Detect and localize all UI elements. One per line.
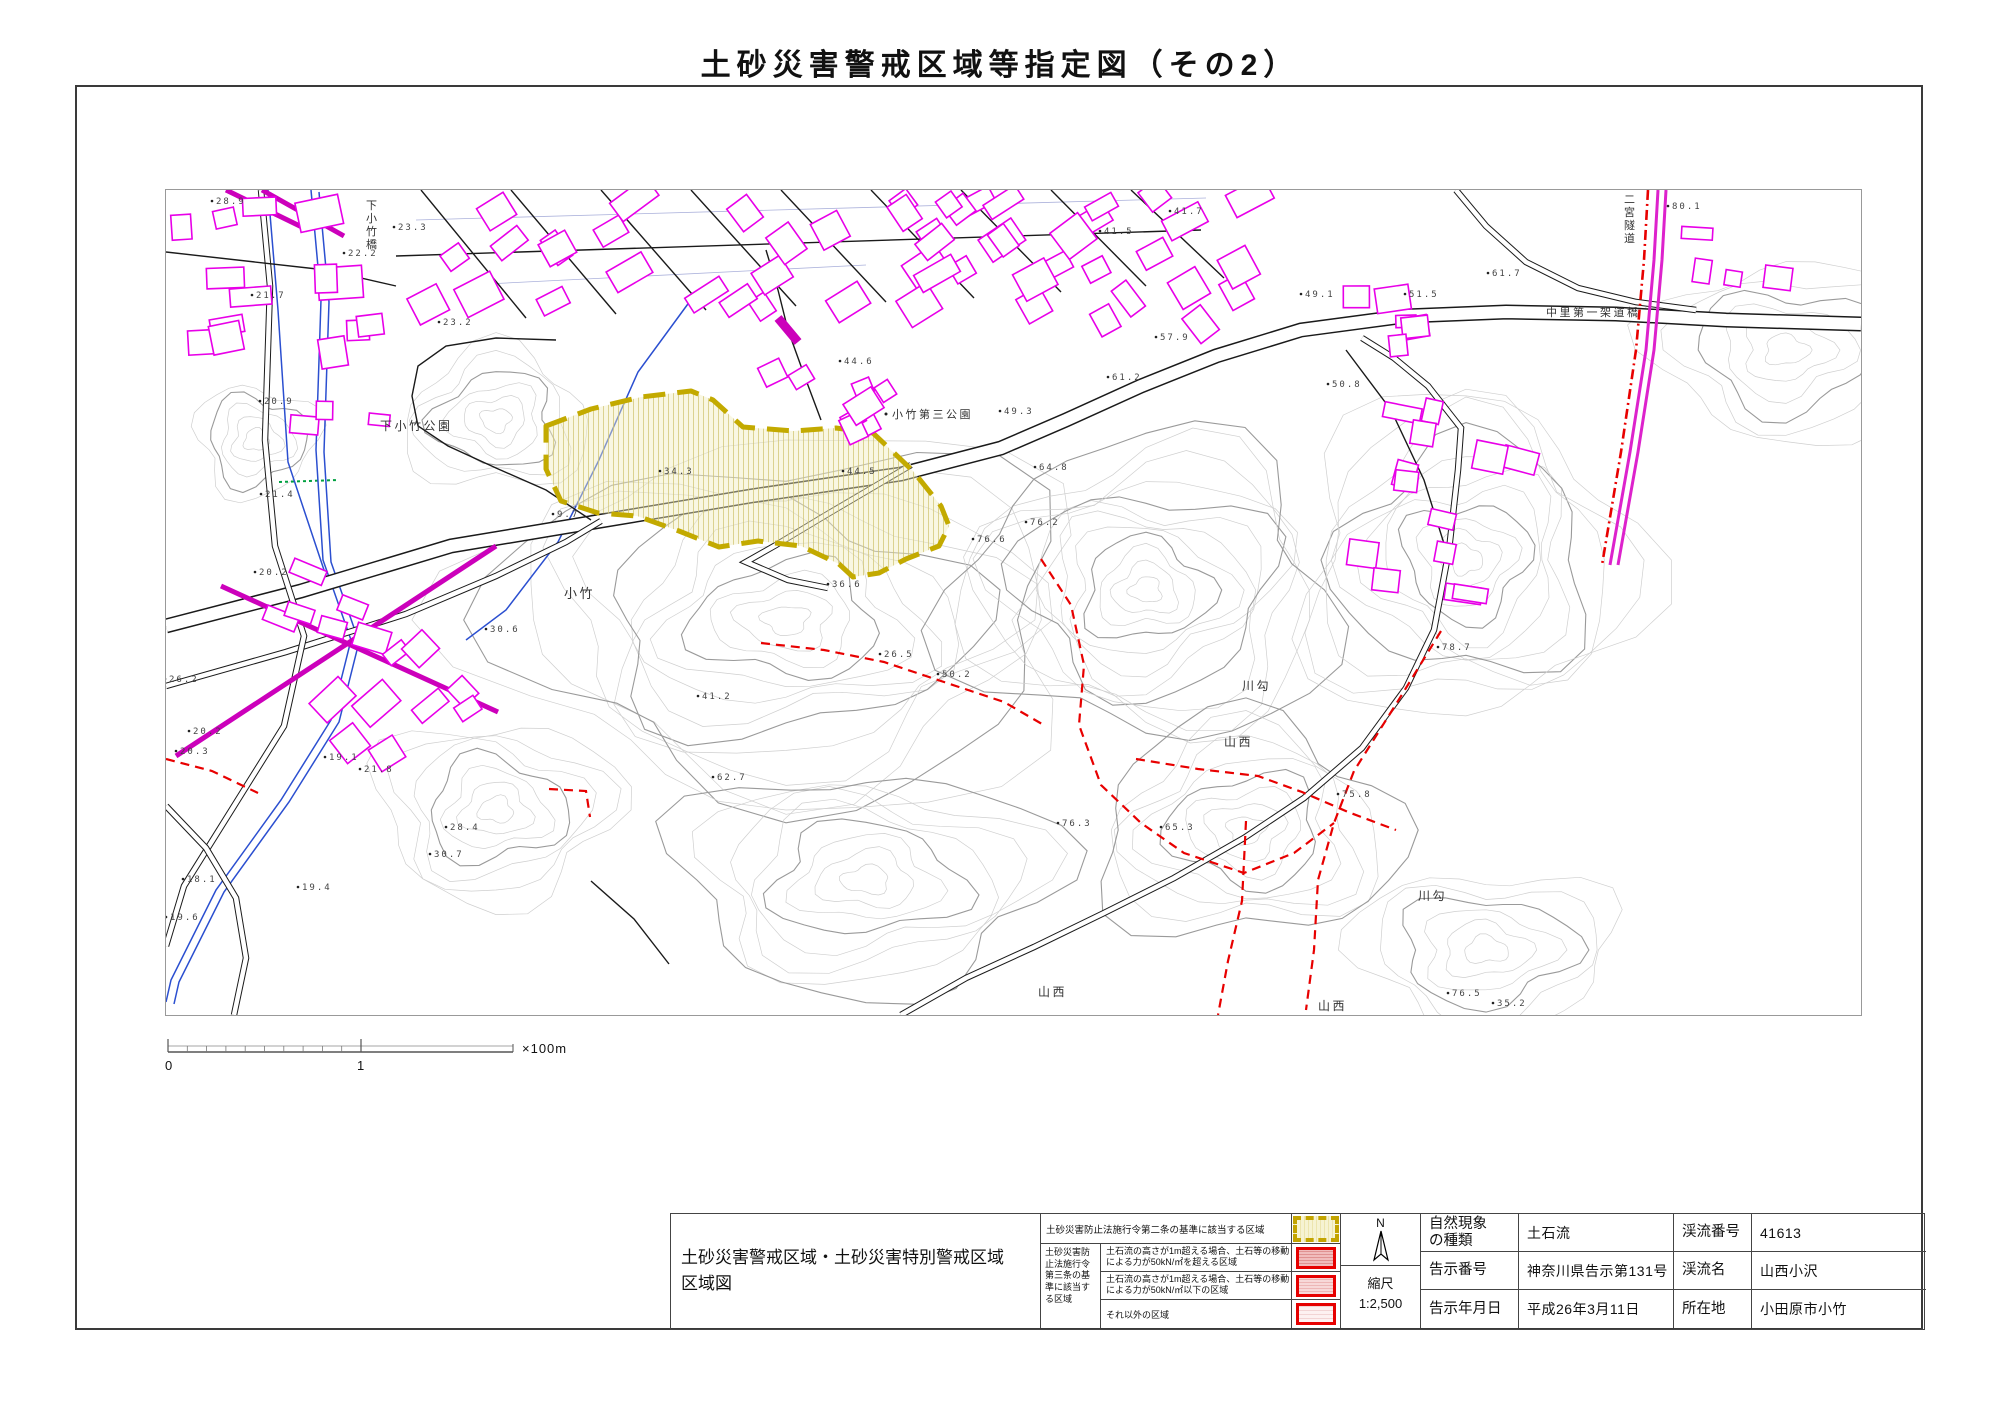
notice-number-value: 神奈川県告示第131号 [1519, 1252, 1674, 1290]
document-page: { "title": "土砂災害警戒区域等指定図（その2）", "scale_b… [0, 0, 2000, 1414]
red-zone-symbol-dense [1296, 1247, 1336, 1269]
map-canvas: 28.922.223.321.720.923.221.420.226.230.6… [166, 190, 1861, 1015]
svg-text:50.8: 50.8 [1332, 380, 1362, 390]
svg-text:57.9: 57.9 [1160, 333, 1190, 343]
svg-text:1: 1 [357, 1058, 364, 1073]
svg-text:20.3: 20.3 [180, 747, 210, 757]
legend-article3-group-label: 土砂災害防止法施行令第三条の基準に該当する区域 [1041, 1244, 1101, 1328]
svg-text:61.2: 61.2 [1112, 373, 1142, 383]
hazard-map: 28.922.223.321.720.923.221.420.226.230.6… [165, 189, 1862, 1016]
map-sheet-title-line2: 区域図 [681, 1271, 1040, 1297]
svg-text:山西: 山西 [1318, 999, 1347, 1013]
red-zone-symbol-medium [1296, 1275, 1336, 1297]
svg-text:28.9: 28.9 [216, 197, 246, 207]
svg-text:山西: 山西 [1038, 985, 1067, 999]
location-label: 所在地 [1674, 1290, 1752, 1328]
notice-number-label: 告示番号 [1421, 1252, 1519, 1290]
hazard-zone-layer [546, 391, 949, 577]
svg-text:49.3: 49.3 [1004, 407, 1034, 417]
svg-text:21.4: 21.4 [265, 490, 295, 500]
stream-number-value: 41613 [1752, 1214, 1926, 1252]
svg-text:20.9: 20.9 [264, 397, 294, 407]
map-scale-cell: 縮尺 1:2,500 [1341, 1266, 1421, 1328]
svg-text:35.2: 35.2 [1497, 999, 1527, 1009]
yellow-dashed-zone-symbol [1293, 1216, 1339, 1242]
notice-date-label: 告示年月日 [1421, 1290, 1519, 1328]
north-arrow-icon [1370, 1230, 1392, 1262]
scale-label: 縮尺 [1341, 1274, 1420, 1294]
legend-article3-row3-symbol-cell [1292, 1300, 1341, 1328]
svg-text:18.1: 18.1 [187, 875, 217, 885]
page-title: 土砂災害警戒区域等指定図（その2） [0, 40, 2000, 84]
legend-article2-symbol-cell [1292, 1214, 1341, 1244]
debris-flow-warning-zone [546, 391, 949, 577]
svg-text:41.7: 41.7 [1174, 207, 1204, 217]
svg-text:20.2: 20.2 [193, 727, 223, 737]
svg-text:61.7: 61.7 [1492, 269, 1522, 279]
legend-article3-row2-symbol-cell [1292, 1272, 1341, 1300]
stream-name-label: 渓流名 [1674, 1252, 1752, 1290]
svg-text:76.6: 76.6 [977, 535, 1007, 545]
stream-name-value: 山西小沢 [1752, 1252, 1926, 1290]
legend-article3-row3-label: それ以外の区域 [1101, 1300, 1292, 1328]
svg-text:下小竹橋: 下小竹橋 [366, 200, 378, 251]
svg-text:76.3: 76.3 [1062, 819, 1092, 829]
compass-cell: N [1341, 1214, 1421, 1266]
phenomenon-type-value: 土石流 [1519, 1214, 1674, 1252]
svg-text:44.5: 44.5 [847, 467, 877, 477]
svg-text:34.3: 34.3 [664, 467, 694, 477]
svg-text:19.6: 19.6 [170, 913, 200, 923]
north-label: N [1341, 1216, 1420, 1230]
svg-text:21.7: 21.7 [256, 291, 286, 301]
svg-text:21.8: 21.8 [364, 765, 394, 775]
svg-text:65.3: 65.3 [1165, 823, 1195, 833]
green-dotted-layer [279, 480, 338, 482]
svg-text:山西: 山西 [1224, 735, 1253, 749]
svg-text:23.3: 23.3 [398, 223, 428, 233]
legend-article3-row1-label: 土石流の高さが1m超える場合、土石等の移動による力が50kN/㎡を超える区域 [1101, 1244, 1292, 1272]
svg-text:75.8: 75.8 [1342, 790, 1372, 800]
legend-article3-row2-label: 土石流の高さが1m超える場合、土石等の移動による力が50kN/㎡以下の区域 [1101, 1272, 1292, 1300]
svg-text:49.1: 49.1 [1305, 290, 1335, 300]
svg-text:76.2: 76.2 [1030, 518, 1060, 528]
svg-text:9.7: 9.7 [557, 510, 579, 520]
svg-text:76.5: 76.5 [1452, 989, 1482, 999]
svg-text:小竹第三公園: 小竹第三公園 [892, 407, 973, 421]
svg-text:川勾: 川勾 [1418, 889, 1447, 903]
svg-text:44.6: 44.6 [844, 357, 874, 367]
svg-text:41.5: 41.5 [1104, 227, 1134, 237]
svg-text:41.2: 41.2 [702, 692, 732, 702]
location-value: 小田原市小竹 [1752, 1290, 1926, 1328]
stream-number-label: 渓流番号 [1674, 1214, 1752, 1252]
red-zone-symbol-light [1296, 1303, 1336, 1325]
svg-text:19.4: 19.4 [302, 883, 332, 893]
svg-text:78.7: 78.7 [1442, 643, 1472, 653]
map-sheet-title-cell: 土砂災害警戒区域・土砂災害特別警戒区域 区域図 [671, 1214, 1041, 1328]
svg-text:30.7: 30.7 [434, 850, 464, 860]
notice-date-value: 平成26年3月11日 [1519, 1290, 1674, 1328]
svg-text:64.8: 64.8 [1039, 463, 1069, 473]
legend-article3-row1-symbol-cell [1292, 1244, 1341, 1272]
scale-value: 1:2,500 [1341, 1294, 1420, 1314]
svg-text:下小竹公園: 下小竹公園 [380, 419, 453, 433]
contour-layer [191, 262, 1861, 1015]
svg-text:19.1: 19.1 [329, 753, 359, 763]
svg-text:62.7: 62.7 [717, 773, 747, 783]
phenomenon-type-label: 自然現象の種類 [1421, 1214, 1519, 1252]
svg-text:28.4: 28.4 [450, 823, 480, 833]
svg-text:26.2: 26.2 [169, 675, 199, 685]
svg-text:小竹: 小竹 [564, 586, 595, 601]
map-sheet-title-line1: 土砂災害警戒区域・土砂災害特別警戒区域 [681, 1245, 1040, 1271]
svg-text:51.5: 51.5 [1409, 290, 1439, 300]
svg-text:26.5: 26.5 [884, 650, 914, 660]
svg-text:80.1: 80.1 [1672, 202, 1702, 212]
svg-text:中里第一架道橋: 中里第一架道橋 [1546, 305, 1641, 319]
svg-text:0: 0 [165, 1058, 172, 1073]
legend-info-table: 土砂災害警戒区域・土砂災害特別警戒区域 区域図 土砂災害防止法施行令第二条の基準… [670, 1213, 1925, 1330]
railway-layer [1610, 190, 1666, 565]
svg-text:30.6: 30.6 [490, 625, 520, 635]
svg-text:二宮隧道: 二宮隧道 [1624, 194, 1636, 245]
svg-text:23.2: 23.2 [443, 318, 473, 328]
svg-text:36.6: 36.6 [832, 580, 862, 590]
legend-article2-label: 土砂災害防止法施行令第二条の基準に該当する区域 [1041, 1214, 1292, 1244]
scale-bar-unit: ×100m [522, 1041, 567, 1056]
svg-text:50.2: 50.2 [942, 670, 972, 680]
svg-text:川勾: 川勾 [1242, 679, 1271, 693]
svg-text:20.2: 20.2 [259, 568, 289, 578]
